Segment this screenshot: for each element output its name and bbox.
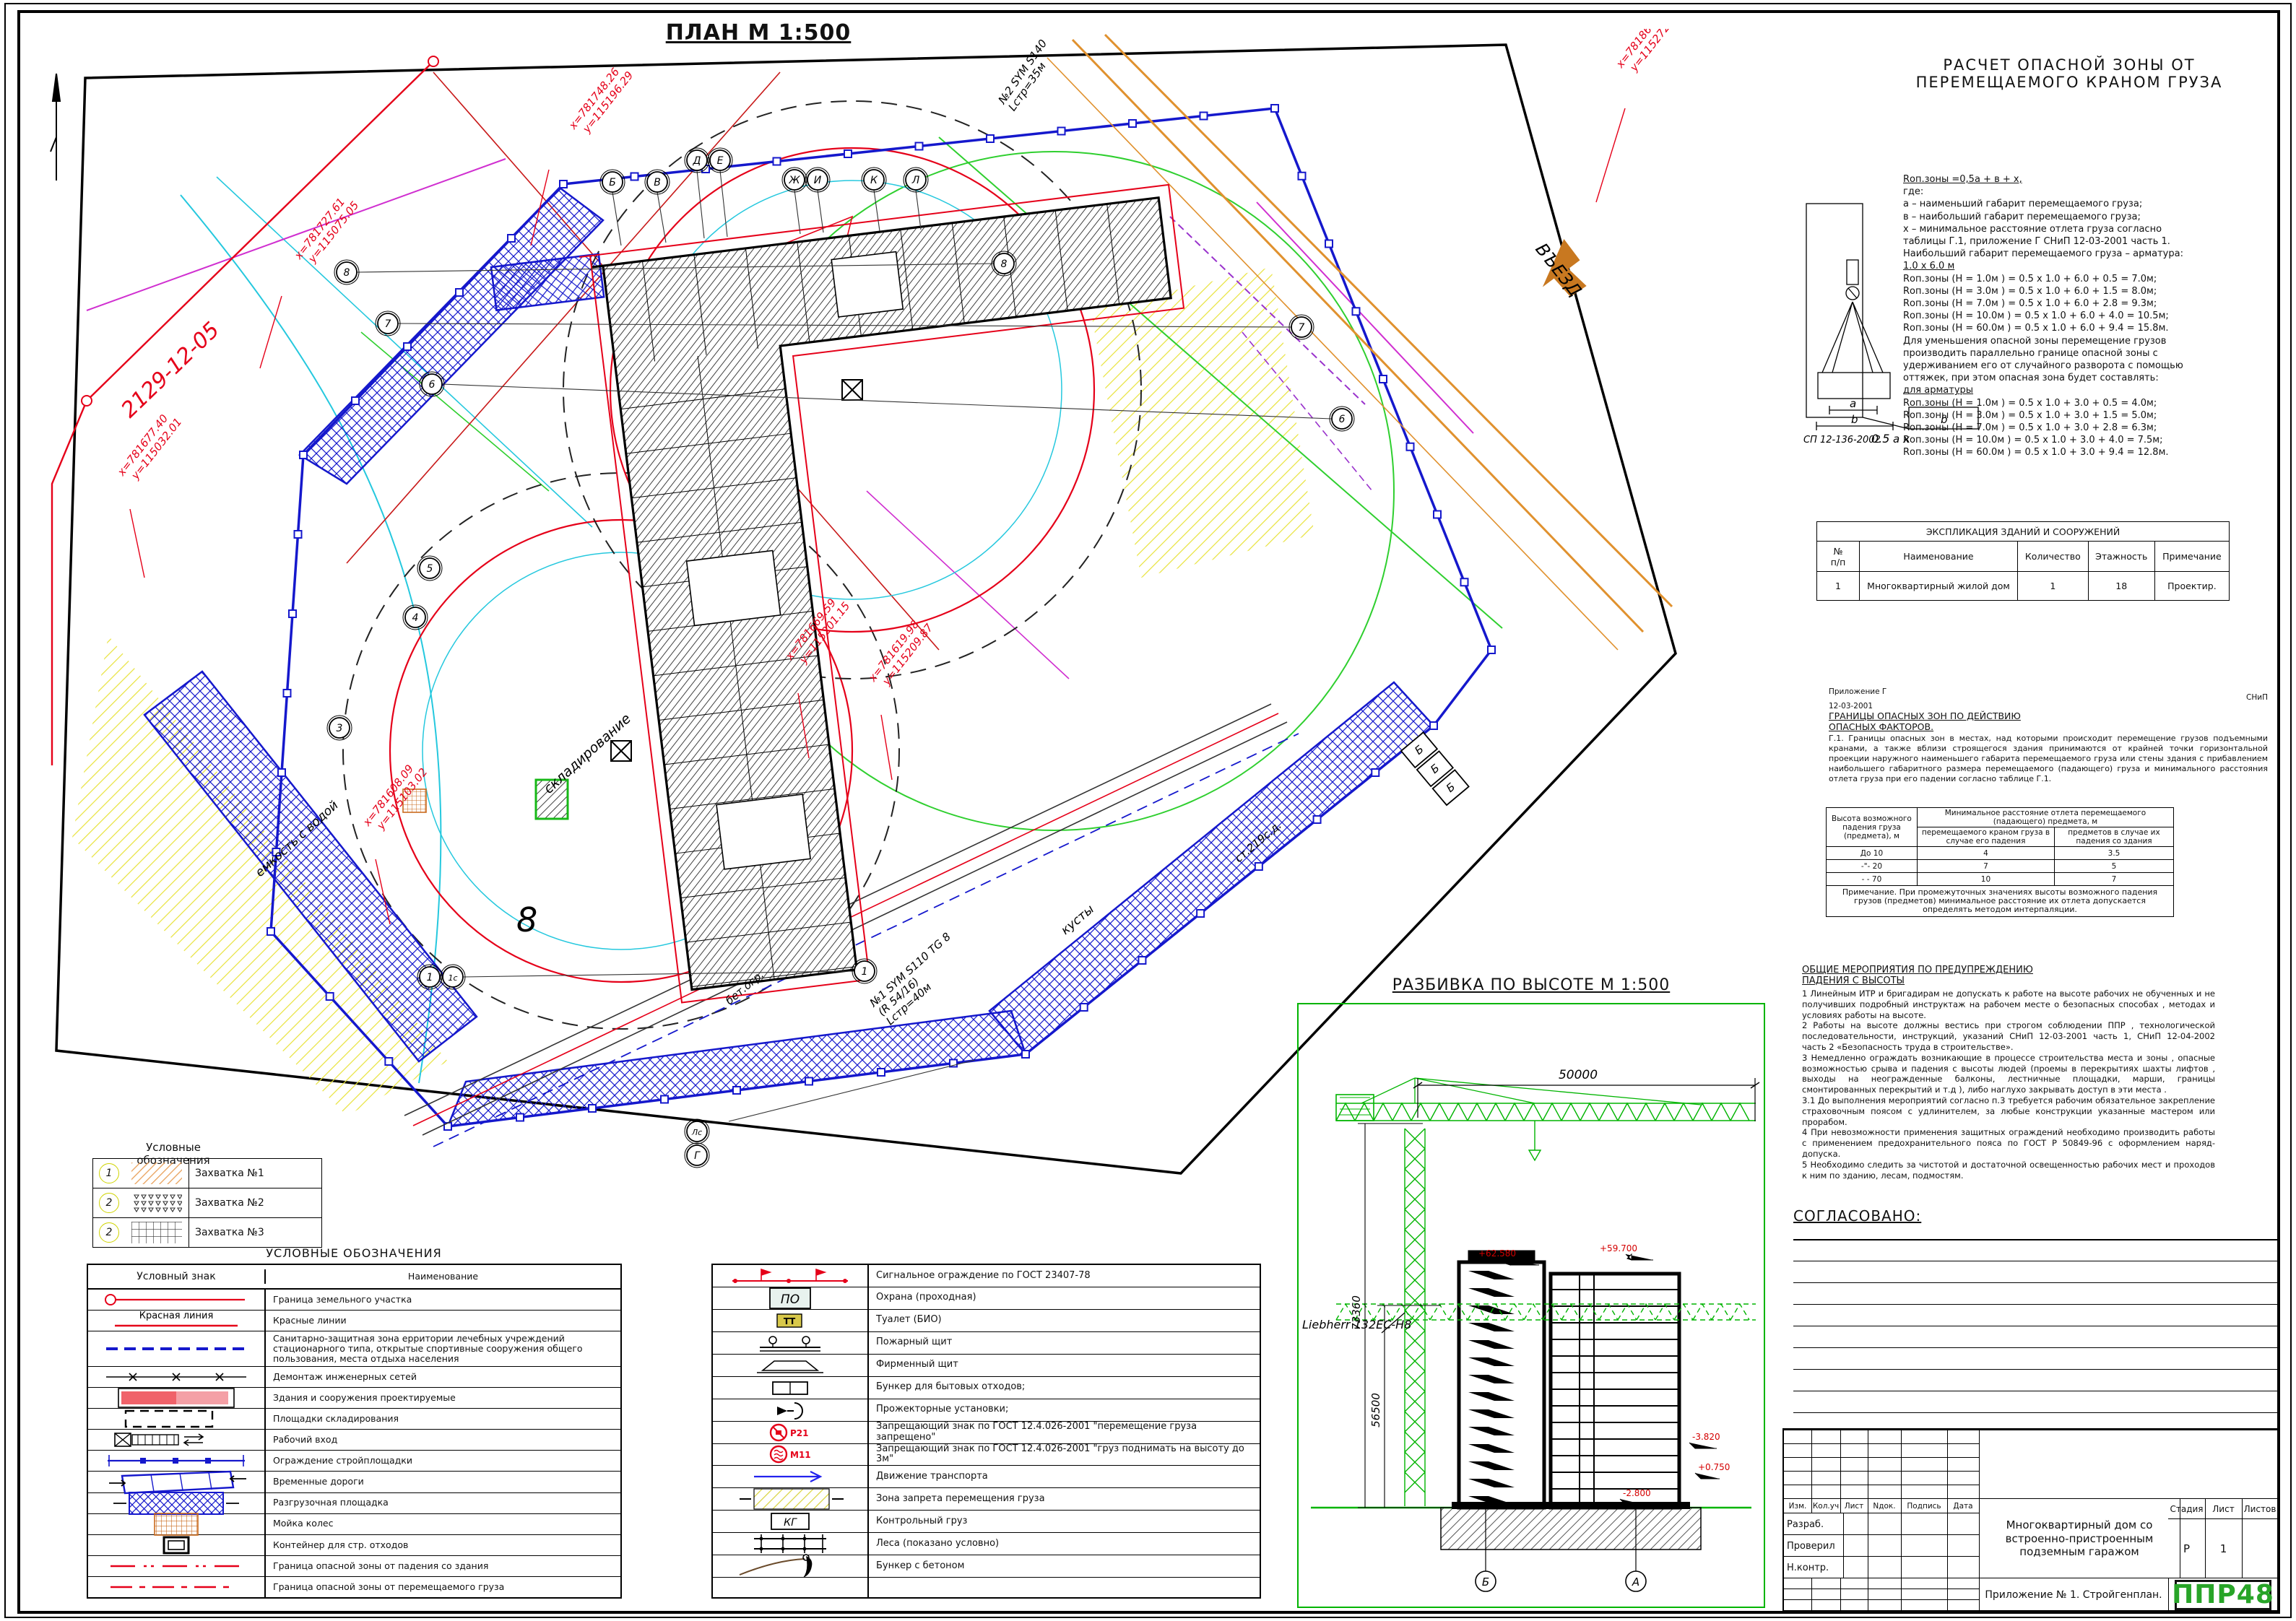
svg-text:х=781867.26у=115272.71: х=781867.26у=115272.71 — [1613, 29, 1683, 79]
svg-text:+62.580: +62.580 — [1478, 1248, 1516, 1259]
stamp-cell — [1947, 1471, 1980, 1485]
legend-row: Зона запрета перемещения груза — [713, 1488, 1260, 1511]
legend-label: Граница земельного участка — [266, 1290, 620, 1310]
stamp-stage-header: Листов — [2242, 1498, 2279, 1519]
stamp-cell — [1868, 1485, 1902, 1499]
stamp-cell — [1811, 1599, 1841, 1611]
approval-title: СОГЛАСОВАНО: — [1793, 1207, 2279, 1225]
calc-line: Rоп.зоны (Н = 7.0м ) = 0.5 х 1.0 + 6.0 +… — [1903, 297, 2282, 310]
legend-label: Леса (показано условно) — [869, 1533, 1260, 1555]
legend-row: Р21 Запрещающий знак по ГОСТ 12.4.026-20… — [713, 1422, 1260, 1444]
calc-line: производить параллельно границе опасной … — [1903, 347, 2282, 360]
legend-label: Запрещающий знак по ГОСТ 12.4.026-2001 "… — [869, 1444, 1260, 1466]
legend-row: Бункер для бытовых отходов; — [713, 1377, 1260, 1399]
explication-header: Этажность — [2088, 542, 2154, 572]
legend-row: Фирменный щит — [713, 1355, 1260, 1377]
svg-text:№1 SYM S110 TG 8(R 54/16)Lстр=: №1 SYM S110 TG 8(R 54/16)Lстр=40м — [867, 930, 970, 1028]
stamp-cell — [1840, 1534, 1868, 1557]
svg-text:СП 12-136-2002: СП 12-136-2002 — [1803, 435, 1881, 446]
svg-text:2129-12-05: 2129-12-05 — [116, 317, 225, 422]
legend-col-name: Наименование — [266, 1270, 620, 1283]
ppr48-logo: ППР48 — [2175, 1580, 2271, 1610]
stamp-logo-cell: ППР48 — [2168, 1578, 2279, 1611]
calc-line: Наибольший габарит перемещаемого груза –… — [1903, 248, 2282, 260]
svg-text:ВЪЕЗД: ВЪЕЗД — [1531, 239, 1585, 300]
stamp-cell — [1868, 1457, 1902, 1472]
stamp-cell — [1901, 1578, 1948, 1589]
title-block: Изм.Кол.учЛистNдок.ПодписьДатаРазраб.Про… — [1782, 1428, 2279, 1612]
svg-text:3: 3 — [337, 723, 343, 734]
stamp-cell — [1901, 1485, 1948, 1499]
calc-line: Rоп.зоны (Н = 1.0м ) = 0.5 х 1.0 + 6.0 +… — [1903, 273, 2282, 285]
svg-text:х=781677.40у=115032.01: х=781677.40у=115032.01 — [114, 407, 184, 487]
svg-text:6: 6 — [1339, 414, 1346, 425]
north-arrow-icon — [51, 74, 60, 181]
table-g1-cell: 10 — [1917, 873, 2054, 886]
stamp-cell — [1811, 1443, 1841, 1458]
calc-line: в – наибольший габарит перемещаемого гру… — [1903, 211, 2282, 223]
table-g1-cell: 5 — [2055, 860, 2174, 873]
table-g1-cell: 3.5 — [2055, 847, 2174, 860]
svg-text:8: 8 — [344, 267, 350, 279]
svg-text:a: a — [1893, 433, 1899, 446]
garage-boxes: БББ — [1401, 732, 1469, 805]
stamp-cell — [1901, 1457, 1948, 1472]
zahvatka-row: 2 Захватка №2 — [93, 1188, 321, 1218]
table-g1-cell: 4 — [1917, 847, 2054, 860]
calc-line: а – наименьший габарит перемещаемого гру… — [1903, 198, 2282, 210]
signature-line — [1793, 1369, 2280, 1370]
stamp-cell — [1840, 1589, 1868, 1600]
explication-title: ЭКСПЛИКАЦИЯ ЗДАНИЙ И СООРУЖЕНИЙ — [1817, 522, 2230, 542]
calc-line: оттяжек, при этом опасная зона будет сос… — [1903, 372, 2282, 384]
legend-row: Пожарный щит — [713, 1332, 1260, 1355]
legend-title: УСЛОВНЫЕ ОБОЗНАЧЕНИЯ — [87, 1246, 621, 1260]
legend-label: Временные дороги — [266, 1472, 620, 1492]
stamp-cell — [1901, 1443, 1948, 1458]
stamp-cell — [1840, 1578, 1868, 1589]
svg-text:Л: Л — [911, 175, 920, 186]
stamp-cell — [1840, 1443, 1868, 1458]
svg-text:Красная линия: Красная линия — [139, 1311, 214, 1321]
svg-text:Е: Е — [717, 155, 724, 167]
fall-prevention-measures: ОБЩИЕ МЕРОПРИЯТИЯ ПО ПРЕДУПРЕЖДЕНИЮ ПАДЕ… — [1802, 965, 2215, 1181]
svg-text:Ж: Ж — [788, 175, 800, 186]
stamp-cell — [1901, 1513, 1948, 1535]
calc-line: таблицы Г.1, приложение Г СНиП 12-03-200… — [1903, 235, 2282, 248]
svg-text:-2.800: -2.800 — [1623, 1488, 1651, 1498]
stamp-cell — [1840, 1471, 1868, 1485]
stamp-cell — [1811, 1578, 1841, 1589]
legend-symbol-fireshield-icon — [713, 1332, 869, 1354]
appendix-g: Приложение Г СНиП 12-03-2001 ГРАНИЦЫ ОПА… — [1829, 687, 2268, 784]
stamp-cell — [1947, 1443, 1980, 1458]
legend-row: КГ Контрольный груз — [713, 1511, 1260, 1533]
load-ban-zone — [1091, 267, 1314, 578]
legend-symbol-demontage-icon — [88, 1367, 266, 1387]
stamp-header: Изм. — [1784, 1498, 1812, 1513]
legend-symbol-container-icon — [88, 1535, 266, 1555]
calc-line: для арматуры — [1903, 384, 2282, 396]
table-g1-note: Примечание. При промежуточных значениях … — [1827, 886, 2174, 917]
legend-row: М11 Запрещающий знак по ГОСТ 12.4.026-20… — [713, 1444, 1260, 1466]
calc-line: Rоп.зоны (Н = 60.0м ) = 0.5 х 1.0 + 6.0 … — [1903, 322, 2282, 334]
legend-symbol-brand-icon — [713, 1355, 869, 1376]
stamp-role: Разраб. — [1784, 1513, 1844, 1535]
legend-label: Контрольный груз — [869, 1511, 1260, 1532]
explication-header: Количество — [2018, 542, 2089, 572]
legend-row: ПО Охрана (проходная) — [713, 1287, 1260, 1310]
legend-row: Здания и сооружения проектируемые — [88, 1388, 620, 1409]
stamp-cell — [1901, 1589, 1948, 1600]
stamp-cell — [1784, 1457, 1812, 1472]
svg-text:№2 SYM S140Lстр=35м: №2 SYM S140Lстр=35м — [995, 37, 1060, 113]
legend-symbol-guard-icon: ПО — [713, 1287, 869, 1309]
stamp-cell — [1811, 1471, 1841, 1485]
svg-text:1: 1 — [862, 966, 868, 978]
stamp-cell — [1784, 1599, 1812, 1611]
legend-table-right: Сигнальное ограждение по ГОСТ 23407-78ПО… — [711, 1264, 1261, 1599]
stamp-cell — [1784, 1443, 1812, 1458]
table-g1-cell: - - 70 — [1827, 873, 1918, 886]
svg-text:7: 7 — [1299, 322, 1305, 334]
explication-cell: 1 — [1817, 572, 1860, 601]
stamp-cell — [1868, 1589, 1902, 1600]
legend-symbol-wash-icon — [88, 1514, 266, 1534]
stamp-stage-header: Стадия — [2168, 1498, 2206, 1519]
stamp-cell — [1811, 1430, 1841, 1444]
legend-symbol-projector-icon — [713, 1399, 869, 1421]
legend-table-left: Условный знак Наименование Граница земел… — [87, 1264, 622, 1599]
explication-cell: Проектир. — [2154, 572, 2229, 601]
legend-symbol-entrance-icon — [88, 1430, 266, 1450]
svg-text:7: 7 — [385, 318, 391, 330]
legend-row: Демонтаж инженерных сетей — [88, 1367, 620, 1388]
calc-line: Для уменьшения опасной зоны перемещение … — [1903, 335, 2282, 347]
legend-label: Площадки складирования — [266, 1409, 620, 1429]
calc-line: Rоп.зоны (Н = 10.0м ) = 0.5 х 1.0 + 3.0 … — [1903, 434, 2282, 446]
legend-row: ТТ Туалет (БИО) — [713, 1310, 1260, 1332]
legend-label: Разгрузочная площадка — [266, 1493, 620, 1513]
legend-label: Запрещающий знак по ГОСТ 12.4.026-2001 "… — [869, 1422, 1260, 1443]
stamp-cell — [1868, 1443, 1902, 1458]
measure-item: 2 Работы на высоте должны вестись при ст… — [1802, 1020, 2215, 1052]
stamp-cell — [1868, 1471, 1902, 1485]
stamp-cell — [1947, 1589, 1980, 1600]
signature-line — [1793, 1326, 2280, 1326]
stamp-cell — [1840, 1485, 1868, 1499]
stamp-cell — [1784, 1471, 1812, 1485]
calc-line: Rоп.зоны (Н = 1.0м ) = 0.5 х 1.0 + 3.0 +… — [1903, 397, 2282, 409]
legend-row: Площадки складирования — [88, 1409, 620, 1430]
svg-text:Г: Г — [694, 1150, 701, 1162]
svg-text:Р21: Р21 — [790, 1428, 809, 1438]
legend-symbol-dzone2-icon — [88, 1577, 266, 1597]
approval-block: СОГЛАСОВАНО: — [1793, 1207, 2279, 1424]
svg-text:6: 6 — [429, 379, 436, 391]
legend-label: Ограждение стройплощадки — [266, 1451, 620, 1471]
calc-line: удерживанием его от случайного разворота… — [1903, 360, 2282, 372]
stamp-cell — [1784, 1430, 1812, 1444]
svg-text:Лс: Лс — [691, 1128, 702, 1137]
zahvatka-label: Захватка №3 — [189, 1218, 321, 1247]
stamp-cell — [1947, 1599, 1980, 1611]
stamp-cell — [1947, 1534, 1980, 1557]
stamp-header: Подпись — [1901, 1498, 1948, 1513]
stamp-cell — [1811, 1457, 1841, 1472]
legend-label: Туалет (БИО) — [869, 1310, 1260, 1331]
calc-line: Rоп.зоны (Н = 10.0м ) = 0.5 х 1.0 + 6.0 … — [1903, 310, 2282, 322]
calc-title: РАСЧЕТ ОПАСНОЙ ЗОНЫ ОТПЕРЕМЕЩАЕМОГО КРАН… — [1856, 56, 2282, 91]
explication-header: Примечание — [2154, 542, 2229, 572]
legend-symbol-border-icon — [88, 1290, 266, 1310]
explication-cell: 1 — [2018, 572, 2089, 601]
stamp-cell — [1784, 1589, 1812, 1600]
signature-line — [1793, 1347, 2280, 1348]
svg-text:А: А — [1632, 1576, 1639, 1589]
stamp-cell — [1840, 1457, 1868, 1472]
svg-text:b: b — [1851, 413, 1858, 426]
stamp-role: Н.контр. — [1784, 1556, 1844, 1578]
signature-line — [1793, 1261, 2280, 1261]
stamp-cell — [1868, 1430, 1902, 1444]
legend-row: Сигнальное ограждение по ГОСТ 23407-78 — [713, 1265, 1260, 1287]
legend-symbol-dzone1-icon — [88, 1556, 266, 1576]
legend-symbol-bunker-icon — [713, 1377, 869, 1399]
zahvatka-symbol — [125, 1218, 189, 1247]
explication-table: ЭКСПЛИКАЦИЯ ЗДАНИЙ И СООРУЖЕНИЙ № п/пНаи… — [1816, 521, 2230, 601]
stamp-cell — [1901, 1599, 1948, 1611]
signature-line — [1793, 1239, 2280, 1240]
stamp-cell — [1840, 1430, 1868, 1444]
elevation-drawing: 50000 73360 56500 Liebherr 132EC-H8 +62.… — [1296, 1002, 1766, 1609]
calc-line: х – минимальное расстояние отлета груза … — [1903, 223, 2282, 235]
legend-label: Демонтаж инженерных сетей — [266, 1367, 620, 1387]
legend-label: Граница опасной зоны от падения со здани… — [266, 1556, 620, 1576]
legend-symbol-buildings-icon — [88, 1388, 266, 1408]
zahvatka-symbol — [125, 1159, 189, 1188]
svg-text:4: 4 — [412, 612, 419, 624]
legend-label: Красные линии — [266, 1311, 620, 1331]
stamp-stage-value — [2242, 1518, 2279, 1578]
stamp-cell — [1947, 1513, 1980, 1535]
legend-label: Фирменный щит — [869, 1355, 1260, 1376]
dim-top-value: 50000 — [1559, 1068, 1598, 1082]
stamp-cell — [1947, 1485, 1980, 1499]
table-g1-cell: 7 — [2055, 873, 2174, 886]
svg-text:8: 8 — [516, 900, 537, 939]
zahvatka-symbol — [125, 1188, 189, 1217]
legend-symbol-concrete-icon — [713, 1555, 869, 1577]
legend-row: Рабочий вход — [88, 1430, 620, 1451]
stamp-cell — [1901, 1556, 1948, 1578]
stamp-stage-value: Р — [2168, 1518, 2206, 1578]
calc-text: Rоп.зоны =0,5а + в + х,где:а – наименьши… — [1903, 173, 2282, 459]
legend-symbol-signal-icon — [713, 1265, 869, 1287]
legend-symbol-signP21-icon: Р21 — [713, 1422, 869, 1443]
svg-text:М11: М11 — [790, 1450, 811, 1460]
legend-symbol-storage-icon — [88, 1409, 266, 1429]
legend-label: Рабочий вход — [266, 1430, 620, 1450]
legend-row: Прожекторные установки; — [713, 1399, 1260, 1422]
stamp-cell — [1840, 1513, 1868, 1535]
stamp-cell — [1784, 1485, 1812, 1499]
table-g1-cell: До 10 — [1827, 847, 1918, 860]
stamp-cell — [1868, 1513, 1902, 1535]
stamp-cell — [1901, 1534, 1948, 1557]
explication-header: № п/п — [1817, 542, 1860, 572]
stamp-cell — [1840, 1556, 1868, 1578]
zahvatki-legend: 1 Захватка №12 Захватка №22 Захватка №3 — [92, 1158, 322, 1248]
svg-text:+0.750: +0.750 — [1698, 1462, 1730, 1472]
calc-line: Rоп.зоны (Н = 60.0м ) = 0.5 х 1.0 + 3.0 … — [1903, 446, 2282, 459]
explication-cell: Многоквартирный жилой дом — [1860, 572, 2018, 601]
measure-item: 5 Необходимо следить за чистотой и доста… — [1802, 1160, 2215, 1181]
legend-label: Охрана (проходная) — [869, 1287, 1260, 1309]
svg-text:К: К — [870, 175, 878, 186]
legend-label: Здания и сооружения проектируемые — [266, 1388, 620, 1408]
legend-row: Граница земельного участка — [88, 1290, 620, 1311]
signature-line — [1793, 1391, 2280, 1391]
stamp-header: Кол.уч — [1811, 1498, 1841, 1513]
legend-label: Сигнальное ограждение по ГОСТ 23407-78 — [869, 1265, 1260, 1287]
stamp-object: Многоквартирный дом со встроенно-пристро… — [1979, 1498, 2180, 1578]
measure-item: 3 Немедленно ограждать возникающие в про… — [1802, 1053, 2215, 1095]
stamp-cell — [1947, 1430, 1980, 1444]
legend-label: Зона запрета перемещения груза — [869, 1488, 1260, 1510]
stamp-doc-title: Приложение № 1. Стройгенплан. — [1979, 1578, 2169, 1611]
legend-label: Бункер для бытовых отходов; — [869, 1377, 1260, 1399]
legend-symbol-redline-icon: Красная линия — [88, 1311, 266, 1331]
svg-text:0.5: 0.5 — [1871, 432, 1889, 446]
calc-line: Rоп.зоны (Н = 3.0м ) = 0.5 х 1.0 + 3.0 +… — [1903, 409, 2282, 422]
stamp-cell — [1811, 1485, 1841, 1499]
legend-label: Движение транспорта — [869, 1466, 1260, 1487]
stamp-cell — [1868, 1578, 1902, 1589]
stamp-doc-number — [1979, 1430, 2279, 1499]
legend-symbol-signM11-icon: М11 — [713, 1444, 869, 1466]
stamp-cell — [1868, 1599, 1902, 1611]
stamp-stage-header: Лист — [2205, 1498, 2243, 1519]
stamp-role: Проверил — [1784, 1534, 1844, 1557]
stamp-header: Дата — [1947, 1498, 1980, 1513]
calc-line: где: — [1903, 186, 2282, 198]
elevation-marks: +62.580 +59.700 -3.820 +0.750 -2.800 — [1478, 1243, 1730, 1498]
signature-line — [1793, 1282, 2280, 1283]
legend-col-symbol: Условный знак — [88, 1269, 266, 1284]
stamp-cell — [1868, 1534, 1902, 1557]
stamp-header: Лист — [1840, 1498, 1868, 1513]
legend-row: Контейнер для стр. отходов — [88, 1535, 620, 1556]
svg-text:1с: 1с — [448, 973, 457, 983]
zahvatka-row: 2 Захватка №3 — [93, 1218, 321, 1247]
legend-row: Санитарно-защитная зона ерритории лечебн… — [88, 1331, 620, 1367]
stamp-cell — [1784, 1578, 1812, 1589]
svg-text:+59.700: +59.700 — [1600, 1243, 1637, 1253]
legend-row: Бункер с бетоном — [713, 1555, 1260, 1578]
zahvatka-number: 2 — [93, 1218, 125, 1247]
svg-text:8: 8 — [1001, 258, 1008, 270]
stamp-cell — [1901, 1471, 1948, 1485]
svg-text:х=781748.26у=115196.29: х=781748.26у=115196.29 — [566, 61, 636, 140]
svg-text:-3.820: -3.820 — [1692, 1432, 1720, 1442]
stamp-stage-value: 1 — [2205, 1518, 2243, 1578]
svg-text:a: a — [1850, 397, 1856, 410]
legend-label: Контейнер для стр. отходов — [266, 1535, 620, 1555]
measure-item: 3.1 До выполнения мероприятий согласно п… — [1802, 1095, 2215, 1127]
signature-line — [1793, 1304, 2280, 1305]
stamp-cell — [1868, 1556, 1902, 1578]
stamp-cell — [1901, 1430, 1948, 1444]
table-g1-cell: -"- 20 — [1827, 860, 1918, 873]
legend-symbol-wc-icon: ТТ — [713, 1310, 869, 1331]
svg-text:И: И — [814, 175, 822, 186]
svg-text:5: 5 — [427, 563, 433, 575]
crane-model-label: Liebherr 132EC-H8 — [1302, 1318, 1411, 1331]
legend-row: Граница опасной зоны от перемещаемого гр… — [88, 1577, 620, 1597]
table-g1: Высота возможного падения груза (предмет… — [1826, 807, 2174, 917]
legend-label: Бункер с бетоном — [869, 1555, 1260, 1577]
explication-cell: 18 — [2088, 572, 2154, 601]
stamp-header: Nдок. — [1868, 1498, 1902, 1513]
zahvatka-number: 2 — [93, 1188, 125, 1217]
stamp-cell — [1947, 1578, 1980, 1589]
legend-label: Мойка колес — [266, 1514, 620, 1534]
svg-text:В: В — [654, 177, 661, 188]
svg-text:Б: Б — [609, 177, 616, 188]
dim-50000 — [1413, 1078, 1759, 1121]
stamp-cell — [1947, 1556, 1980, 1578]
calc-line: 1.0 х 6.0 м — [1903, 260, 2282, 272]
svg-text:Д: Д — [693, 155, 701, 167]
svg-text:Б: Б — [1482, 1576, 1489, 1589]
signature-line — [1793, 1412, 2280, 1413]
stamp-cell — [1947, 1457, 1980, 1472]
calc-line: Rоп.зоны (Н = 7.0м ) = 0.5 х 1.0 + 3.0 +… — [1903, 422, 2282, 434]
zahvatka-label: Захватка №1 — [189, 1159, 321, 1188]
stamp-cell — [1811, 1589, 1841, 1600]
dim-v2: 56500 — [1369, 1393, 1382, 1427]
legend-symbol-sanzone-icon — [88, 1331, 266, 1366]
svg-text:ТТ: ТТ — [784, 1316, 796, 1326]
zahvatka-number: 1 — [93, 1159, 125, 1188]
legend-row: Красная линия Красные линии — [88, 1311, 620, 1331]
svg-text:х=781619.98у=115209.87: х=781619.98у=115209.87 — [865, 613, 935, 692]
stamp-cell — [1840, 1599, 1868, 1611]
legend-row-empty — [713, 1578, 1260, 1597]
svg-text:х=781727.61у=115075.05: х=781727.61у=115075.05 — [291, 191, 361, 270]
legend-symbol-testload-icon: КГ — [713, 1511, 869, 1532]
legend-symbol-banzone-icon — [713, 1488, 869, 1510]
explication-header: Наименование — [1860, 542, 2018, 572]
calc-line: Rоп.зоны =0,5а + в + х, — [1903, 173, 2282, 186]
legend-label: Пожарный щит — [869, 1332, 1260, 1354]
zahvatka-row: 1 Захватка №1 — [93, 1159, 321, 1188]
measure-item: 4 При невозможности применения защитных … — [1802, 1127, 2215, 1159]
svg-text:ПО: ПО — [781, 1292, 800, 1307]
zahvatka-label: Захватка №2 — [189, 1188, 321, 1217]
elevation-title: РАЗБИВКА ПО ВЫСОТЕ М 1:500 — [1329, 976, 1733, 994]
legend-row: Мойка колес — [88, 1514, 620, 1535]
legend-label: Санитарно-защитная зона ерритории лечебн… — [266, 1331, 620, 1366]
table-g1-cell: 7 — [1917, 860, 2054, 873]
svg-text:КГ: КГ — [784, 1517, 797, 1529]
legend-label: Прожекторные установки; — [869, 1399, 1260, 1421]
legend-row: Граница опасной зоны от падения со здани… — [88, 1556, 620, 1577]
measure-item: 1 Линейным ИТР и бригадирам не допускать… — [1802, 988, 2215, 1020]
calc-line: Rоп.зоны (Н = 3.0м ) = 0.5 х 1.0 + 6.0 +… — [1903, 285, 2282, 297]
svg-text:1: 1 — [427, 972, 433, 983]
